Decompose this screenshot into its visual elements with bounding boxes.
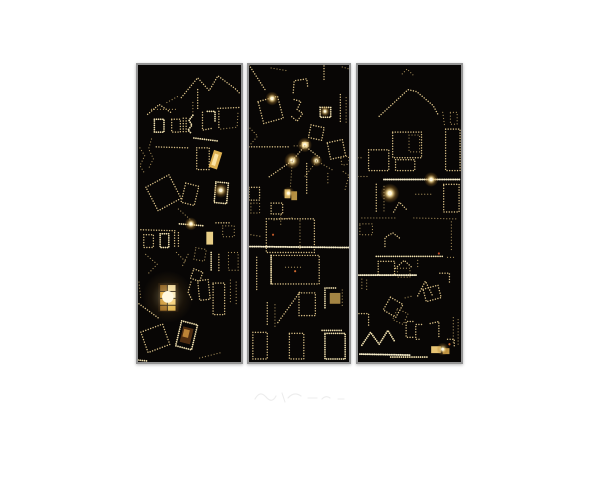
photo-canvas: [0, 0, 600, 480]
artwork-panel-right: [356, 63, 463, 364]
panel-dot-art-left: [138, 65, 241, 362]
faint-watermark: [248, 386, 364, 408]
artwork-panel-left: [136, 63, 243, 364]
artwork-panel-center: [247, 63, 351, 364]
panel-dot-art-right: [358, 65, 461, 362]
panel-dot-art-center: [249, 65, 349, 362]
